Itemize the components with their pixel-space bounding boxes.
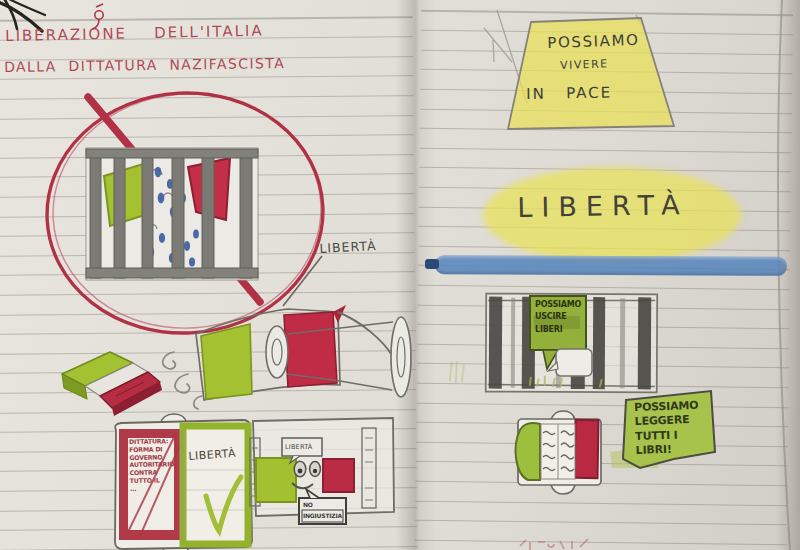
- flag-green-patch: [104, 164, 148, 226]
- definition-book-text: DITTATURA: FORMA DI GOVERNO AUTORITARIO,…: [129, 437, 176, 492]
- prison-bubble-text: POSSIAMO USCIRE LIBERI: [535, 299, 585, 336]
- notebook-photo: LIBERAZIONE DELL'ITALIA DALLA DITTATURA …: [0, 0, 800, 550]
- face-green-square: [256, 458, 296, 502]
- liberta-caption: LIBERTÀ: [319, 238, 377, 257]
- face-red-square: [323, 459, 354, 492]
- flag-character-bubble-top-text: LIBERTÀ: [285, 443, 312, 451]
- tricolor-box: [62, 352, 162, 416]
- cutoff-red-writing: [520, 539, 588, 550]
- small-blank-bubble: [556, 349, 592, 376]
- page-curl-shadow: [776, 0, 800, 550]
- peace-sign-line3: IN PACE: [526, 83, 612, 103]
- prison-top-rail: [86, 149, 258, 158]
- blue-band-start-mark: [425, 259, 439, 269]
- books-sign-text: POSSIAMO LEGGERE TUTTI I LIBRI!: [634, 398, 714, 458]
- peace-sign-line2: VIVERE: [560, 57, 609, 72]
- liberta-word-right: LIBERTÀ: [517, 188, 689, 225]
- tricolor-book-drawing: [516, 411, 601, 494]
- blue-crayon-band: [435, 255, 787, 276]
- peace-sign-line1: POSSIAMO: [547, 31, 640, 53]
- prison-bottom-rail: [86, 268, 258, 278]
- pencil-pointer-line: [283, 256, 322, 306]
- flag-character-bubble-bottom-text: NO INGIUSTIZIA: [303, 500, 342, 522]
- prison-left-drawing: [86, 148, 258, 280]
